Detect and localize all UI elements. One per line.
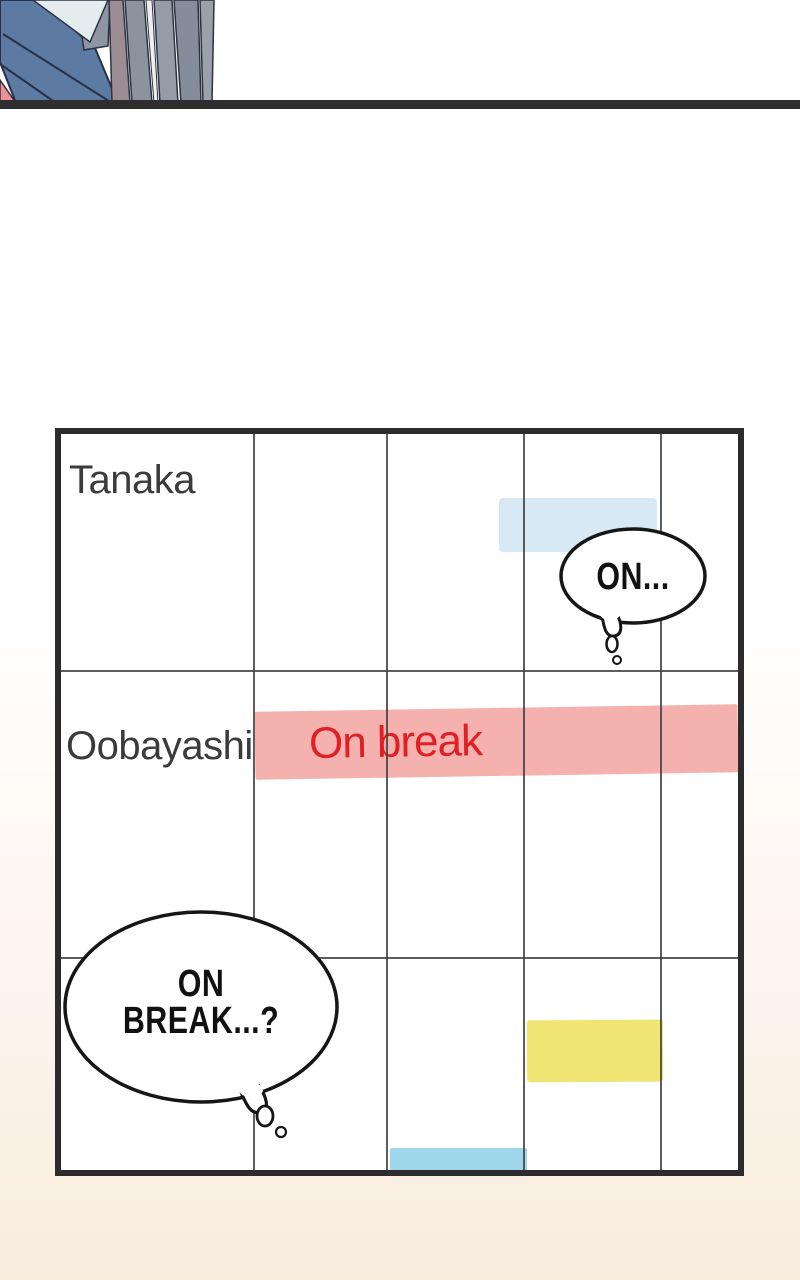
schedule-bar-blue-bottom — [390, 1148, 527, 1170]
panel-divider — [0, 100, 800, 109]
row-name-oobayashi: Oobayashi — [66, 726, 253, 766]
schedule-bar-yellow — [527, 1020, 663, 1083]
grid-column-line-3 — [523, 434, 525, 1170]
character-artwork — [0, 0, 230, 103]
thought-bubble-on-break-line2: BREAK...? — [97, 1002, 306, 1039]
row-name-tanaka: Tanaka — [69, 460, 195, 500]
grid-column-line-2 — [386, 434, 388, 1170]
thought-bubble-on-break-text: ON BREAK...? — [97, 965, 306, 1039]
schedule-bar-oobayashi-break: On break — [254, 704, 738, 780]
comic-page: On break Tanaka Oobayashi ON... — [0, 0, 800, 1280]
character-artwork-svg — [0, 0, 230, 103]
thought-bubble-on-break-line1: ON — [97, 965, 306, 1002]
on-break-label: On break — [309, 715, 483, 771]
thought-bubble-on-text: ON... — [565, 554, 702, 597]
